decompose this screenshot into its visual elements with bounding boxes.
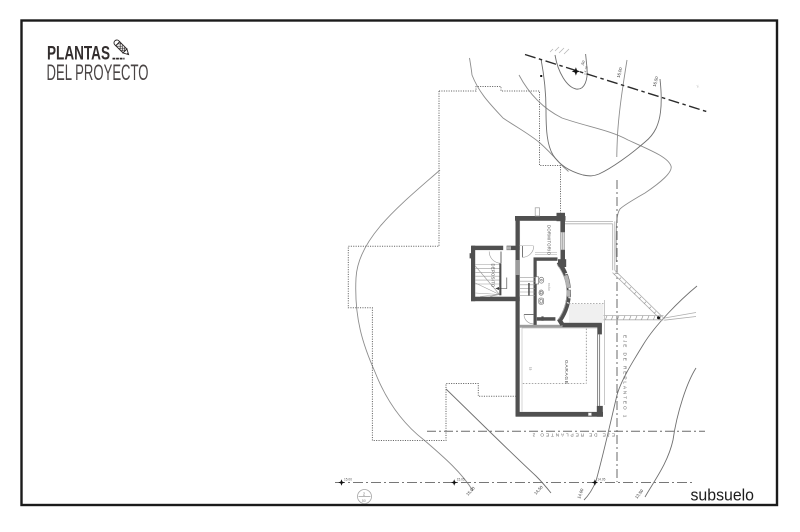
svg-text:DEPOSITO: DEPOSITO bbox=[491, 264, 496, 288]
svg-text:50: 50 bbox=[362, 499, 366, 503]
svg-text:15.00: 15.00 bbox=[344, 478, 352, 482]
svg-text:15: 15 bbox=[529, 367, 533, 371]
svg-text:DEL PROYECTO: DEL PROYECTO bbox=[47, 60, 149, 85]
svg-text:15.05: 15.05 bbox=[457, 478, 465, 482]
svg-text:DORMITORIO: DORMITORIO bbox=[547, 225, 552, 256]
svg-text:subsuelo: subsuelo bbox=[691, 487, 755, 505]
svg-text:EJE DE REPLANTEO 1: EJE DE REPLANTEO 1 bbox=[623, 335, 628, 419]
svg-text:GARAGE: GARAGE bbox=[563, 360, 569, 385]
svg-text:EJE DE REPLANTEO 2: EJE DE REPLANTEO 2 bbox=[531, 433, 615, 438]
svg-text:BAÑO: BAÑO bbox=[547, 283, 552, 292]
svg-text:14.05: 14.05 bbox=[597, 478, 605, 482]
